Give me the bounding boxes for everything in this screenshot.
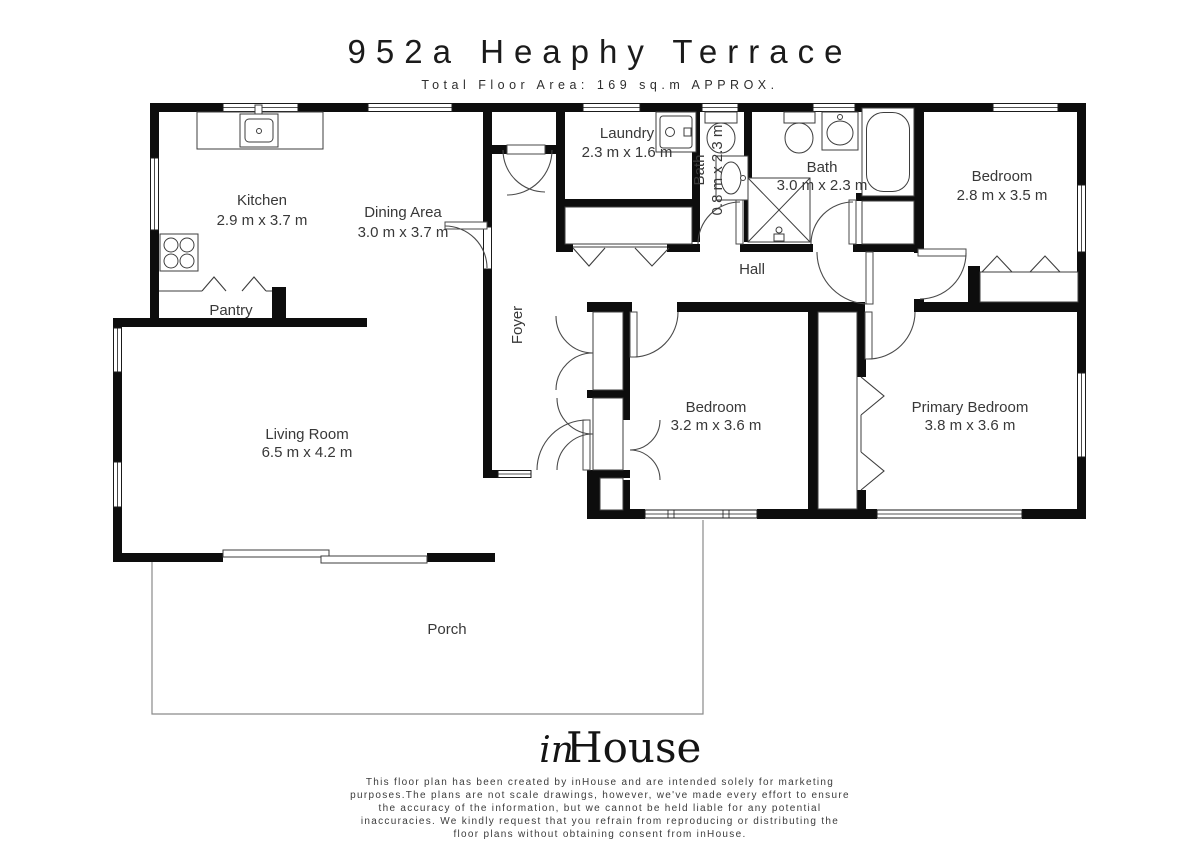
bedroom-top-closet: [980, 272, 1078, 302]
disclaimer-line-5: floor plans without obtaining consent fr…: [453, 829, 746, 840]
floorplan-page: 952a Heaphy Terrace Total Floor Area: 16…: [0, 0, 1200, 848]
logo-inhouse-serif: House: [566, 723, 701, 772]
bath-small-dims: 0.8 m x 2.3 m: [709, 125, 726, 216]
bedroom-top-label: Bedroom: [972, 168, 1033, 185]
linen-cupboard: [862, 201, 914, 244]
disclaimer-line-4: inaccuracies. We kindly request that you…: [361, 816, 839, 827]
laundry-label: Laundry: [600, 125, 655, 142]
closets: [159, 201, 1078, 510]
floor-area-subtitle: Total Floor Area: 169 sq.m APPROX.: [421, 78, 778, 92]
bedroom-wardrobe: [600, 478, 623, 510]
bath-small-door: [736, 200, 743, 244]
porch-outline: [152, 520, 703, 714]
laundry-dims: 2.3 m x 1.6 m: [582, 144, 673, 161]
hall-closet: [565, 207, 692, 244]
toilet-small: [705, 112, 737, 123]
toilet: [784, 112, 815, 123]
page-title: 952a Heaphy Terrace: [348, 33, 853, 70]
foyer-label: Foyer: [509, 306, 526, 344]
floorplan-canvas: 952a Heaphy Terrace Total Floor Area: 16…: [0, 0, 1200, 848]
bath-label: Bath: [807, 159, 838, 176]
bedroom-top-dims: 2.8 m x 3.5 m: [957, 187, 1048, 204]
bedroom-mid-label: Bedroom: [686, 399, 747, 416]
bath-small-label: Bath: [691, 155, 708, 186]
foyer-closet-a: [593, 312, 623, 390]
bedroom-top-door: [918, 249, 966, 256]
living-dims: 6.5 m x 4.2 m: [262, 444, 353, 461]
bedroom-mid-dims: 3.2 m x 3.6 m: [671, 417, 762, 434]
porch-label: Porch: [427, 621, 466, 638]
dining-door: [445, 222, 487, 229]
primary-closet: [818, 312, 857, 509]
footer: in House This floor plan has been create…: [350, 723, 850, 840]
primary-dims: 3.8 m x 3.6 m: [925, 417, 1016, 434]
sliding-door: [223, 550, 427, 563]
front-door: [507, 145, 545, 154]
bath-dims: 3.0 m x 2.3 m: [777, 177, 868, 194]
hall-door: [866, 252, 873, 304]
hall-label: Hall: [739, 261, 765, 278]
primary-label: Primary Bedroom: [912, 399, 1029, 416]
dining-dims: 3.0 m x 3.7 m: [358, 224, 449, 241]
kitchen-fixtures: [160, 105, 323, 271]
living-label: Living Room: [265, 426, 348, 443]
bedroom-mid-door: [630, 312, 637, 357]
disclaimer-line-3: the accuracy of the information, but we …: [379, 803, 822, 814]
pantry-label: Pantry: [209, 302, 253, 319]
kitchen-label: Kitchen: [237, 192, 287, 209]
foyer-living-door: [583, 420, 590, 470]
kitchen-dims: 2.9 m x 3.7 m: [217, 212, 308, 229]
bath-door: [849, 200, 856, 244]
disclaimer-line-2: purposes.The plans are not scale drawing…: [350, 790, 850, 801]
disclaimer-line-1: This floor plan has been created by inHo…: [366, 777, 834, 788]
foyer-closet-b: [593, 398, 623, 470]
primary-bedroom-door: [865, 312, 872, 359]
interior-walls: [272, 103, 1086, 519]
dining-label: Dining Area: [364, 204, 442, 221]
